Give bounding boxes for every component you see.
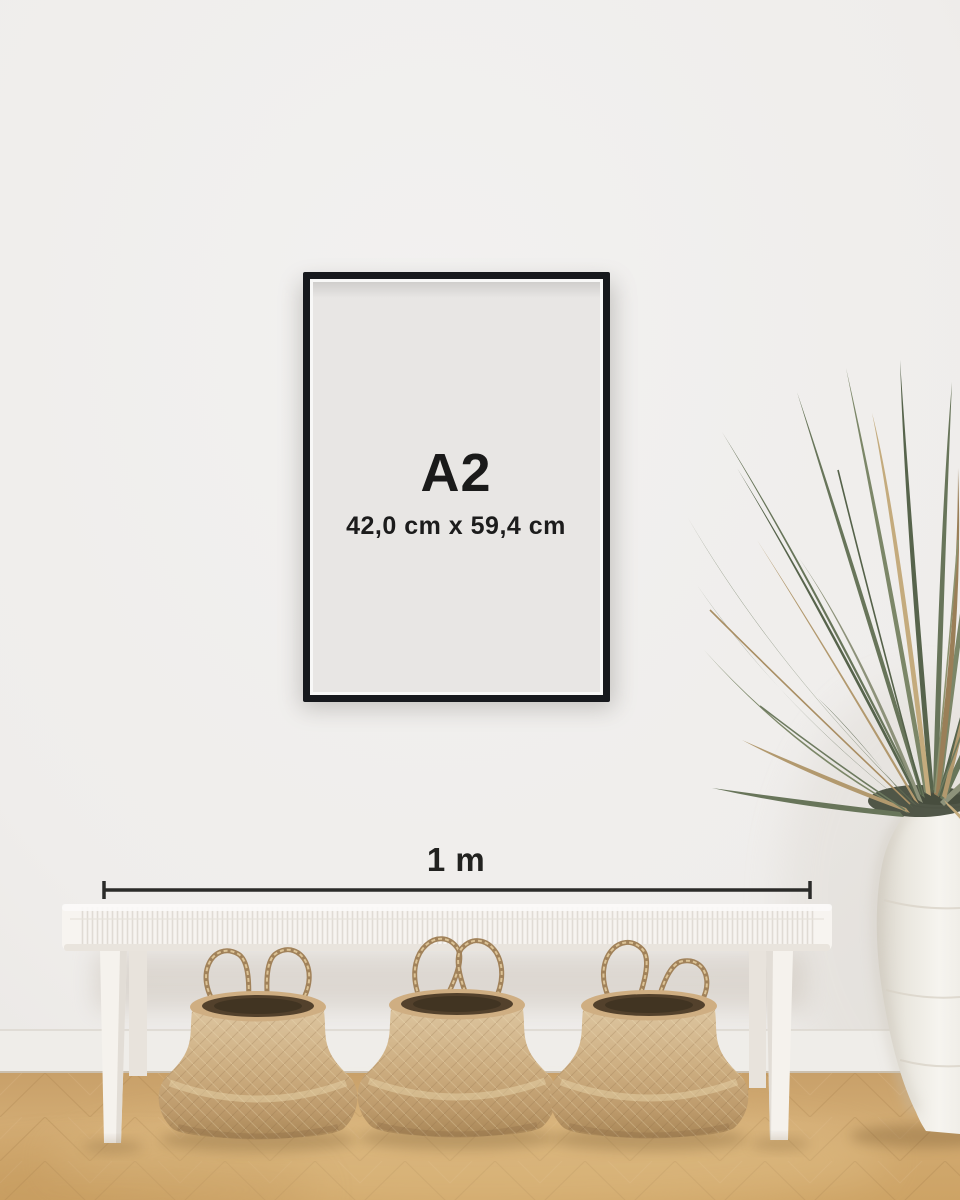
bench-leg-right-rear (749, 950, 766, 1088)
poster-top-shade (313, 282, 600, 298)
poster-dimensions-label: 42,0 cm x 59,4 cm (346, 512, 566, 540)
bench-foot-shadow-left (83, 1141, 143, 1153)
bench-seat-bottom-edge (64, 944, 830, 951)
poster-size-label: A2 (420, 443, 491, 503)
poster-frame: A2 42,0 cm x 59,4 cm (301, 272, 614, 708)
bench-seat-top-lip (62, 904, 832, 911)
scale-label: 1 m (427, 841, 485, 878)
bench-foot-shadow-right (750, 1138, 810, 1150)
size-guide-photo: A2 42,0 cm x 59,4 cm 1 m (0, 0, 960, 1200)
bench-leg-left-rear (129, 950, 147, 1076)
